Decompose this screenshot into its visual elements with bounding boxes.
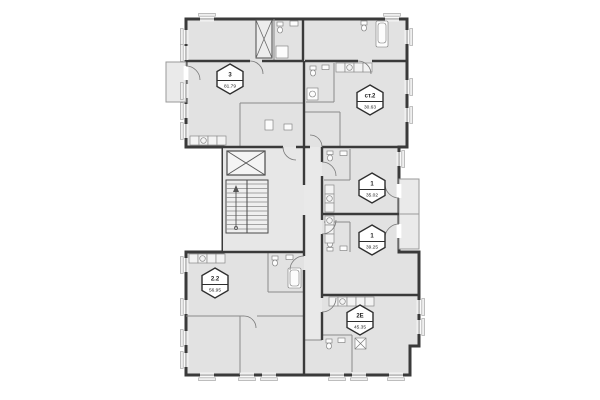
toilet-icon	[310, 66, 316, 76]
window-icon	[199, 13, 216, 21]
unit-area-label: 35.02	[366, 193, 378, 199]
hexagon-badge-icon	[359, 225, 385, 255]
window-icon	[180, 352, 188, 369]
washer-icon	[355, 338, 366, 349]
sink-icon	[340, 151, 347, 156]
floor-plan-canvas: 3 81.79 ст.2 30.63 1 35.02 1 39.25 2.2 5…	[0, 0, 600, 400]
unit-area-label: 45.35	[354, 325, 366, 331]
window-icon	[417, 299, 425, 316]
sink-icon	[286, 255, 293, 260]
staircase-icon	[226, 180, 268, 233]
window-icon	[180, 45, 188, 62]
window-icon	[261, 373, 278, 381]
balcony-door-gap	[397, 224, 402, 238]
window-icon	[405, 79, 413, 96]
bathtub-icon	[376, 21, 388, 47]
balcony-right-lower	[399, 214, 419, 249]
window-icon	[180, 103, 188, 120]
window-icon	[180, 330, 188, 347]
unit-area-label: 56.95	[209, 288, 221, 294]
sink-icon	[340, 246, 347, 251]
hexagon-badge-icon	[217, 64, 243, 94]
bathtub-icon	[288, 268, 301, 288]
window-icon	[180, 29, 188, 46]
unit-st-2[interactable]	[303, 19, 407, 147]
window-icon	[384, 13, 401, 21]
window-icon	[180, 83, 188, 100]
balcony-door-gap	[397, 184, 402, 198]
hexagon-badge-icon	[359, 173, 385, 203]
sink-icon	[338, 338, 345, 343]
hexagon-badge-icon	[202, 268, 228, 298]
unit-area-label: 81.79	[224, 84, 236, 90]
window-icon	[388, 373, 405, 381]
toilet-icon	[361, 21, 367, 31]
unit-badge-st-2[interactable]: ст.2 30.63	[357, 85, 383, 115]
unit-type-label: 2Е	[356, 314, 363, 320]
unit-badge-3[interactable]: 3 81.79	[217, 64, 243, 94]
window-icon	[239, 373, 256, 381]
window-icon	[329, 373, 346, 381]
unit-badge-2-2[interactable]: 2.2 56.95	[202, 268, 228, 298]
toilet-icon	[272, 256, 278, 266]
sink-icon	[290, 21, 298, 26]
unit-badge-1-lower[interactable]: 1 39.25	[359, 225, 385, 255]
toilet-icon	[326, 339, 332, 349]
window-icon	[417, 319, 425, 336]
sink-icon	[322, 65, 329, 70]
shower-icon	[276, 46, 288, 58]
window-icon	[405, 29, 413, 46]
unit-area-label: 39.25	[366, 245, 378, 251]
hexagon-badge-icon	[357, 85, 383, 115]
unit-2-2[interactable]	[186, 252, 304, 375]
hexagon-badge-icon	[347, 305, 373, 335]
elevator-icon	[227, 151, 265, 175]
window-icon	[180, 257, 188, 274]
appliance-icon	[265, 120, 273, 130]
window-icon	[351, 373, 368, 381]
balcony-right-upper	[399, 179, 419, 214]
toilet-icon	[327, 151, 333, 161]
corridor	[304, 147, 322, 340]
window-icon	[180, 123, 188, 140]
window-icon	[405, 107, 413, 124]
window-icon	[199, 373, 216, 381]
vent-shaft-icon	[256, 20, 272, 58]
unit-type-label: ст.2	[365, 94, 376, 100]
unit-badge-2e[interactable]: 2Е 45.35	[347, 305, 373, 335]
floor-plan-drawing: 3 81.79 ст.2 30.63 1 35.02 1 39.25 2.2 5…	[0, 0, 600, 400]
window-icon	[180, 299, 188, 316]
washer-icon	[307, 88, 318, 100]
unit-area-label: 30.63	[364, 105, 376, 111]
unit-type-label: 2.2	[211, 277, 220, 283]
window-icon	[397, 151, 405, 168]
unit-badge-1-upper[interactable]: 1 35.02	[359, 173, 385, 203]
balcony-door-gap	[184, 66, 189, 80]
appliance-icon	[284, 124, 292, 130]
